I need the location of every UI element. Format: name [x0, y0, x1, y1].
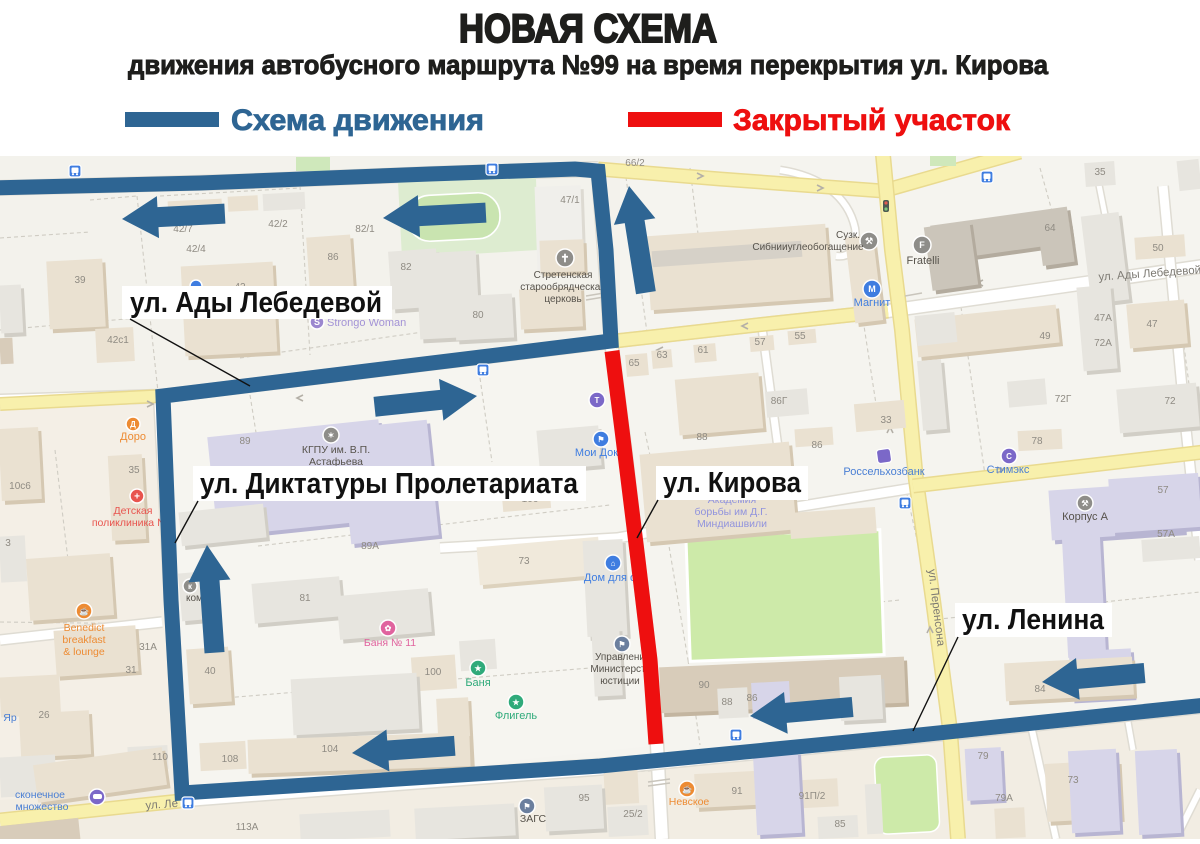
svg-text:57А: 57А: [1157, 529, 1175, 540]
svg-text:КГПУ им. В.П.: КГПУ им. В.П.: [302, 444, 370, 456]
svg-text:25/2: 25/2: [623, 809, 643, 820]
svg-text:старообрядческая: старообрядческая: [520, 281, 605, 293]
svg-text:✶: ✶: [328, 431, 335, 440]
svg-text:86: 86: [327, 252, 339, 263]
svg-text:89: 89: [239, 436, 251, 447]
svg-text:79: 79: [977, 751, 989, 762]
svg-text:79А: 79А: [995, 793, 1013, 804]
svg-text:F: F: [919, 240, 925, 250]
svg-text:церковь: церковь: [544, 294, 581, 305]
svg-text:86: 86: [811, 440, 823, 451]
svg-text:72А: 72А: [1094, 338, 1112, 349]
svg-text:66/2: 66/2: [625, 158, 645, 169]
svg-text:& lounge: & lounge: [63, 646, 105, 658]
svg-text:81: 81: [299, 593, 311, 604]
svg-text:31А: 31А: [139, 642, 157, 653]
svg-text:64: 64: [1044, 223, 1056, 234]
svg-text:95: 95: [578, 793, 590, 804]
svg-text:Дом для о: Дом для о: [584, 572, 636, 584]
svg-text:47А: 47А: [1094, 313, 1112, 324]
svg-text:Стимэкс: Стимэкс: [987, 464, 1030, 476]
svg-text:110: 110: [152, 752, 168, 763]
svg-text:57: 57: [754, 337, 766, 348]
svg-text:42с1: 42с1: [107, 335, 129, 346]
svg-text:82/1: 82/1: [355, 224, 375, 235]
svg-text:31: 31: [125, 665, 137, 676]
svg-text:ул. Ленина: ул. Ленина: [962, 604, 1105, 636]
svg-text:⚑: ⚑: [523, 802, 530, 811]
svg-text:113А: 113А: [236, 822, 259, 833]
svg-text:☕: ☕: [682, 784, 692, 794]
svg-text:⚑: ⚑: [618, 640, 625, 649]
svg-text:80: 80: [472, 310, 484, 321]
svg-text:72Г: 72Г: [1055, 394, 1072, 405]
svg-text:Баня № 11: Баня № 11: [364, 637, 416, 649]
svg-text:Сузк.: Сузк.: [836, 230, 860, 241]
svg-text:35: 35: [1094, 167, 1106, 178]
svg-text:ЗАГС: ЗАГС: [520, 813, 547, 825]
svg-text:⚒: ⚒: [1081, 499, 1088, 508]
svg-text:Детская: Детская: [114, 505, 153, 517]
svg-text:★: ★: [474, 664, 482, 673]
svg-text:88: 88: [721, 697, 733, 708]
svg-text:42/4: 42/4: [186, 244, 206, 255]
svg-text:88: 88: [696, 432, 708, 443]
svg-text:ул. Кирова: ул. Кирова: [663, 467, 802, 499]
svg-text:100: 100: [425, 667, 442, 678]
svg-text:65: 65: [628, 358, 640, 369]
svg-text:108: 108: [222, 754, 239, 765]
svg-text:борьбы им Д.Г.: борьбы им Д.Г.: [695, 506, 768, 518]
svg-text:47: 47: [1146, 319, 1158, 330]
svg-text:85: 85: [834, 819, 846, 830]
svg-text:НОВАЯ СХЕМА: НОВАЯ СХЕМА: [459, 7, 717, 51]
svg-text:✿: ✿: [385, 624, 392, 633]
svg-text:72: 72: [1164, 396, 1176, 407]
svg-text:сконечное: сконечное: [15, 789, 65, 801]
svg-text:множество: множество: [16, 801, 69, 813]
svg-text:Стретенская: Стретенская: [534, 270, 593, 281]
svg-text:ул. Ады Лебедевой: ул. Ады Лебедевой: [130, 287, 382, 319]
svg-text:Корпус А: Корпус А: [1062, 511, 1109, 523]
svg-text:ул. Диктатуры Пролетариата: ул. Диктатуры Пролетариата: [200, 468, 579, 500]
svg-text:✝: ✝: [560, 253, 569, 265]
svg-text:40: 40: [204, 666, 216, 677]
svg-text:73: 73: [518, 556, 530, 567]
svg-text:104: 104: [322, 744, 339, 755]
svg-text:86: 86: [746, 693, 758, 704]
svg-text:33: 33: [880, 415, 892, 426]
svg-text:⌂: ⌂: [611, 559, 616, 568]
svg-text:49: 49: [1039, 331, 1051, 342]
svg-text:★: ★: [512, 698, 520, 707]
svg-text:Яр: Яр: [3, 712, 17, 724]
svg-text:Fratelli: Fratelli: [906, 255, 939, 267]
svg-text:⚑: ⚑: [597, 435, 604, 444]
svg-text:39: 39: [74, 275, 86, 286]
svg-text:Сибнииуглеобогащение: Сибнииуглеобогащение: [752, 241, 864, 253]
svg-text:Схема движения: Схема движения: [231, 104, 484, 137]
svg-text:юстиции: юстиции: [600, 676, 640, 687]
svg-text:breakfast: breakfast: [62, 634, 105, 646]
svg-text:Benedict: Benedict: [64, 622, 105, 634]
svg-text:Магнит: Магнит: [854, 297, 891, 309]
svg-text:91: 91: [731, 786, 743, 797]
svg-text:М: М: [868, 284, 876, 294]
svg-text:Т: Т: [595, 396, 600, 405]
svg-text:Миндиашвили: Миндиашвили: [697, 518, 767, 530]
svg-text:☕: ☕: [79, 606, 89, 616]
svg-text:Флигель: Флигель: [495, 710, 538, 722]
svg-text:10с6: 10с6: [9, 481, 31, 492]
svg-text:⚒: ⚒: [865, 236, 873, 246]
svg-text:89А: 89А: [361, 541, 379, 552]
svg-text:Доро: Доро: [120, 431, 146, 443]
svg-text:84: 84: [1034, 684, 1046, 695]
svg-text:86Г: 86Г: [771, 396, 788, 407]
svg-text:Баня: Баня: [465, 677, 490, 689]
svg-text:движения автобусного маршрута: движения автобусного маршрута №99 на вре…: [128, 50, 1049, 80]
svg-text:47/1: 47/1: [560, 195, 580, 206]
svg-text:90: 90: [698, 680, 710, 691]
svg-text:42/2: 42/2: [268, 219, 288, 230]
svg-text:Невское: Невское: [669, 796, 710, 808]
svg-text:35: 35: [128, 465, 140, 476]
svg-text:61: 61: [697, 345, 709, 356]
svg-text:Д: Д: [130, 420, 136, 429]
svg-text:3: 3: [5, 538, 11, 549]
svg-text:Закрытый участок: Закрытый участок: [733, 104, 1011, 137]
svg-text:Министерст: Министерст: [590, 664, 646, 675]
svg-text:73: 73: [1067, 775, 1079, 786]
svg-text:Управлени: Управлени: [595, 652, 645, 663]
svg-text:+: +: [134, 492, 140, 503]
svg-text:C: C: [1006, 452, 1012, 461]
svg-text:57: 57: [1157, 485, 1169, 496]
svg-text:ул. Ле: ул. Ле: [145, 798, 178, 812]
svg-text:55: 55: [794, 331, 806, 342]
svg-text:50: 50: [1152, 243, 1164, 254]
svg-text:82: 82: [400, 262, 412, 273]
svg-text:91П/2: 91П/2: [799, 791, 826, 802]
svg-text:Россельхозбанк: Россельхозбанк: [843, 466, 924, 478]
svg-text:78: 78: [1031, 436, 1043, 447]
svg-text:26: 26: [38, 710, 50, 721]
svg-text:63: 63: [656, 350, 668, 361]
